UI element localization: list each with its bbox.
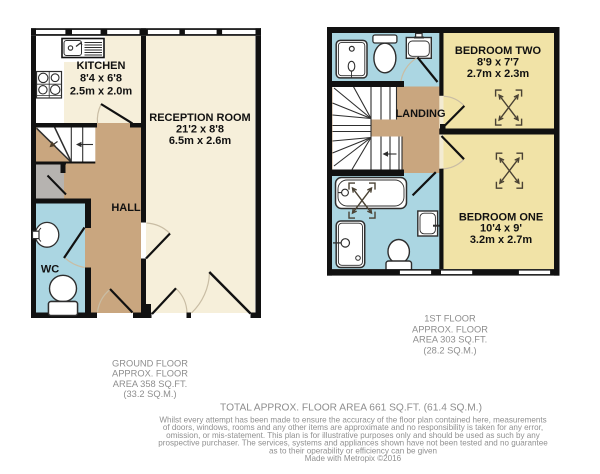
svg-text:WC: WC <box>41 264 59 276</box>
svg-text:21'2 x 8'8: 21'2 x 8'8 <box>176 124 224 136</box>
svg-text:AREA 303 SQ.FT.: AREA 303 SQ.FT. <box>413 335 487 345</box>
svg-text:Made with Metropix ©2016: Made with Metropix ©2016 <box>305 454 402 463</box>
svg-text:TOTAL APPROX. FLOOR AREA 661 S: TOTAL APPROX. FLOOR AREA 661 SQ.FT. (61.… <box>220 403 482 414</box>
svg-text:AREA 358 SQ.FT.: AREA 358 SQ.FT. <box>113 379 187 389</box>
svg-text:8'4 x 6'8: 8'4 x 6'8 <box>80 73 122 85</box>
svg-text:1ST FLOOR: 1ST FLOOR <box>424 314 476 324</box>
svg-text:APPROX. FLOOR: APPROX. FLOOR <box>412 324 488 334</box>
svg-text:HALL: HALL <box>111 202 141 214</box>
svg-text:GROUND FLOOR: GROUND FLOOR <box>112 359 188 369</box>
svg-text:8'9 x 7'7: 8'9 x 7'7 <box>477 57 519 69</box>
svg-text:3.2m x 2.7m: 3.2m x 2.7m <box>470 234 533 246</box>
svg-text:BEDROOM ONE: BEDROOM ONE <box>459 212 543 224</box>
svg-text:KITCHEN: KITCHEN <box>77 60 126 72</box>
svg-text:2.7m x 2.3m: 2.7m x 2.3m <box>467 68 530 80</box>
svg-text:BEDROOM TWO: BEDROOM TWO <box>455 45 542 57</box>
svg-text:6.5m x 2.6m: 6.5m x 2.6m <box>169 135 232 147</box>
svg-text:2.5m x 2.0m: 2.5m x 2.0m <box>70 85 133 97</box>
svg-text:(28.2 SQ.M.): (28.2 SQ.M.) <box>423 346 476 356</box>
svg-text:APPROX. FLOOR: APPROX. FLOOR <box>112 369 188 379</box>
svg-text:RECEPTION ROOM: RECEPTION ROOM <box>149 112 250 124</box>
svg-text:(33.2 SQ.M.): (33.2 SQ.M.) <box>123 389 176 399</box>
svg-text:10'4 x 9': 10'4 x 9' <box>480 223 522 235</box>
svg-text:LANDING: LANDING <box>395 108 445 120</box>
